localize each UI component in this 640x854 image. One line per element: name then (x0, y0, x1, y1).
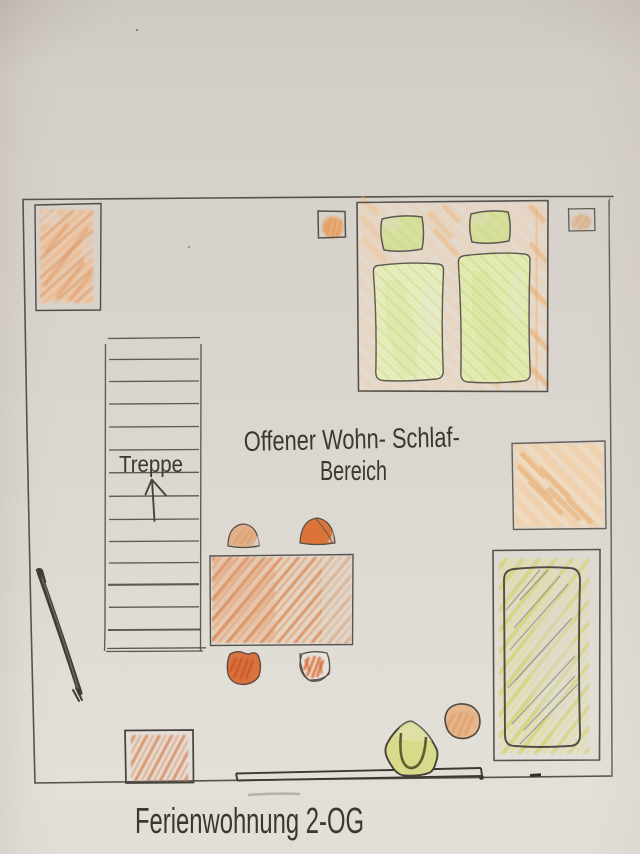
svg-text:Treppe: Treppe (119, 451, 183, 477)
svg-text:Bereich: Bereich (320, 455, 387, 486)
svg-text:Offener Wohn- Schlaf-: Offener Wohn- Schlaf- (243, 421, 460, 457)
svg-text:Ferienwohnung 2-OG: Ferienwohnung 2-OG (135, 800, 364, 841)
